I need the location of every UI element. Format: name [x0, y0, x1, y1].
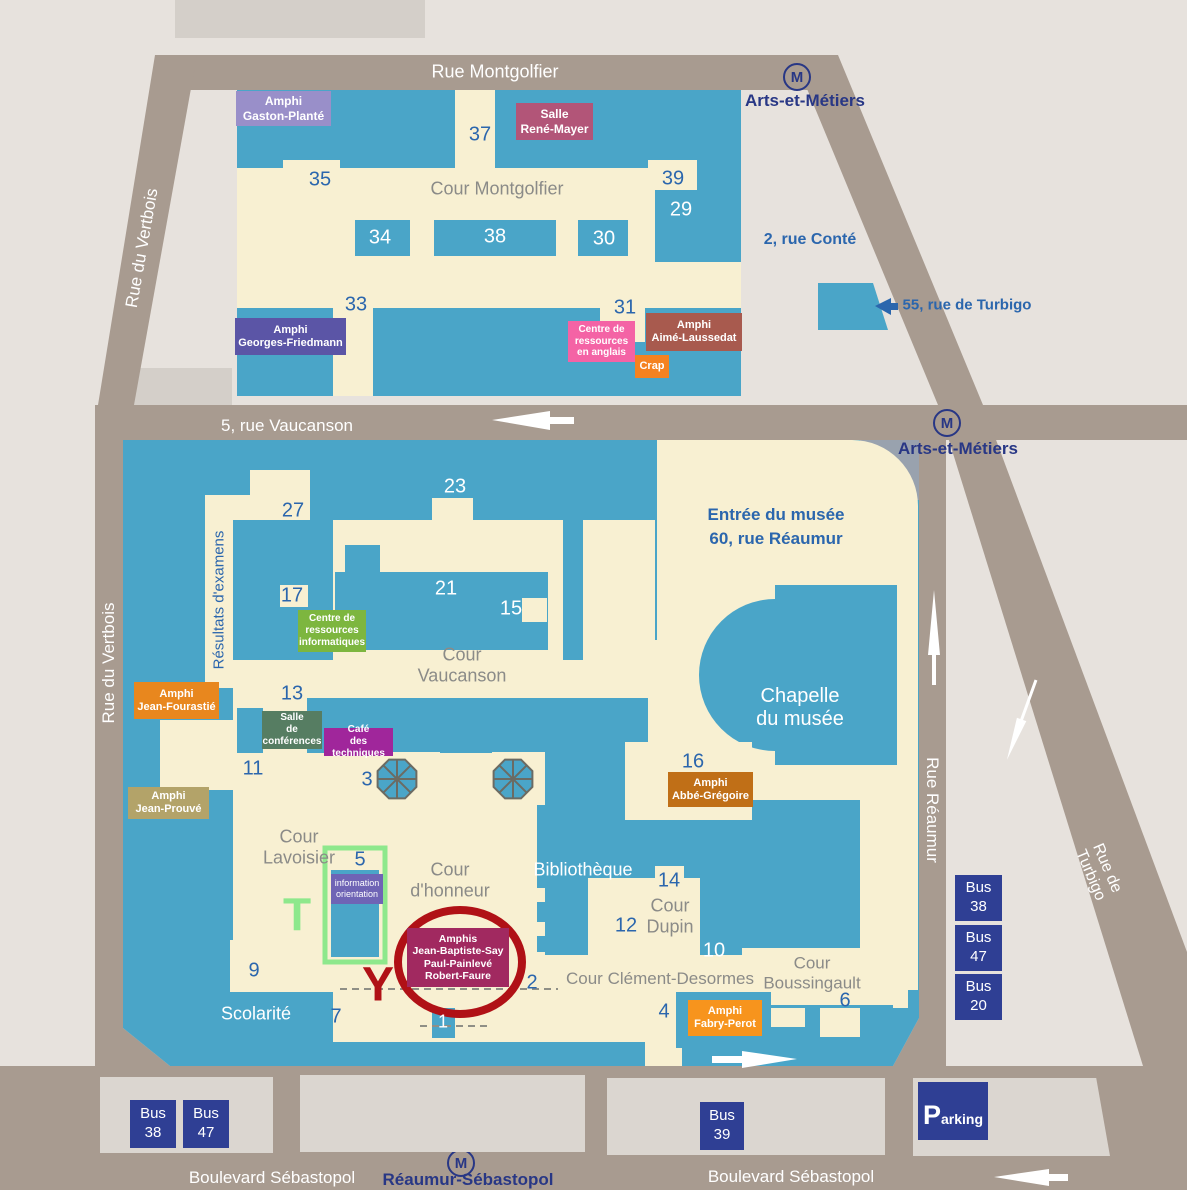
square-block: [300, 1075, 585, 1152]
room-rene-mayer: Salle René-Mayer: [516, 103, 593, 140]
room-crap: Crap: [635, 355, 669, 378]
number-9: 9: [248, 960, 259, 983]
street-rue-reaumur: Rue Réaumur: [922, 757, 942, 863]
number-13: 13: [281, 683, 303, 706]
street-rue-vaucanson: 5, rue Vaucanson: [221, 416, 353, 436]
area-scolarite: Scolarité: [221, 1004, 291, 1025]
courtyard-montgolfier: Cour Montgolfier: [430, 179, 563, 200]
bus-stop-block-middle: [607, 1078, 885, 1155]
courtyard-boussingault: Cour Boussingault: [763, 953, 860, 992]
room-gaston-plante: Amphi Gaston-Planté: [236, 91, 331, 126]
road-rue-reaumur: [919, 405, 946, 1066]
courtyard-clement-desormes: Cour Clément-Desormes: [566, 969, 754, 989]
number-35: 35: [309, 169, 331, 192]
number-6: 6: [839, 990, 850, 1013]
number-11: 11: [243, 758, 264, 781]
bus-badge-38-bottom: Bus 38: [130, 1100, 176, 1148]
number-23: 23: [444, 476, 466, 499]
room-salle-conferences: Salle de conférences: [262, 711, 322, 749]
street-boulevard-sebastopol-left: Boulevard Sébastopol: [189, 1168, 355, 1188]
room-abbe-gregoire: Amphi Abbé-Grégoire: [668, 772, 753, 807]
bus-badge-20-right: Bus 20: [955, 974, 1002, 1020]
bus-badge-38-right: Bus 38: [955, 875, 1002, 921]
number-3: 3: [361, 769, 372, 792]
area-resultats-examens: Résultats d'examens: [210, 531, 227, 670]
room-aime-laussedat: Amphi Aimé-Laussedat: [646, 313, 742, 351]
number-29: 29: [670, 199, 692, 222]
address-55-rue-turbigo: 55, rue de Turbigo: [903, 296, 1032, 313]
number-1: 1: [438, 1012, 448, 1033]
number-33: 33: [345, 294, 367, 317]
number-5: 5: [354, 849, 365, 872]
address-rue-conte: 2, rue Conté: [764, 231, 856, 249]
number-4: 4: [658, 1001, 669, 1024]
number-10: 10: [703, 940, 725, 963]
room-jean-fourastie: Amphi Jean-Fourastié: [134, 682, 219, 719]
metro-badge-mid: M: [933, 409, 961, 437]
number-7: 7: [330, 1006, 341, 1029]
room-jean-prouve: Amphi Jean-Prouvé: [128, 787, 209, 819]
number-27: 27: [282, 500, 304, 523]
map-geometry: [0, 0, 1187, 1190]
metro-badge-top: M: [783, 63, 811, 91]
room-information-orientation: information orientation: [331, 874, 383, 904]
number-38: 38: [484, 226, 506, 249]
marker-y: Y: [362, 957, 394, 1012]
bus-badge-47-bottom: Bus 47: [183, 1100, 229, 1148]
courtyard-vaucanson: Cour Vaucanson: [418, 644, 507, 685]
number-16: 16: [682, 751, 704, 774]
room-cafe-techniques: Café des techniques: [324, 728, 393, 756]
marker-t: T: [283, 889, 311, 942]
number-14: 14: [658, 870, 680, 893]
parking-badge: Parking: [918, 1082, 988, 1140]
bus-badge-47-right: Bus 47: [955, 925, 1002, 971]
number-12: 12: [615, 915, 637, 938]
metro-station-bottom: Réaumur-Sébastopol: [383, 1170, 554, 1190]
courtyard-dupin: Cour Dupin: [646, 895, 693, 936]
parasol-icon: [378, 760, 417, 799]
number-15: 15: [500, 598, 522, 621]
room-ressources-informatiques: Centre de ressources informatiques: [298, 610, 366, 652]
bus-badge-39-bottom: Bus 39: [700, 1102, 744, 1150]
street-boulevard-sebastopol-right: Boulevard Sébastopol: [708, 1167, 874, 1187]
road-vertbois-lower: [95, 405, 123, 1066]
number-2: 2: [526, 972, 537, 995]
cnam-campus-map: Rue Montgolfier Rue du Vertbois Rue du V…: [0, 0, 1187, 1190]
number-37: 37: [469, 124, 491, 147]
parasol-icon: [494, 760, 533, 799]
number-17: 17: [281, 585, 303, 608]
street-rue-du-vertbois-lower: Rue du Vertbois: [99, 603, 119, 724]
room-fabry-perot: Amphi Fabry-Perot: [688, 1000, 762, 1036]
courtyard-honneur: Cour d'honneur: [410, 859, 490, 900]
number-39: 39: [662, 168, 684, 191]
room-amphis-say-painleve-faure: Amphis Jean-Baptiste-Say Paul-Painlevé R…: [407, 928, 509, 987]
area-bibliotheque: Bibliothèque: [533, 860, 632, 881]
number-31: 31: [614, 297, 636, 320]
metro-station-mid: Arts-et-Métiers: [898, 439, 1018, 459]
street-rue-montgolfier: Rue Montgolfier: [431, 62, 558, 83]
room-ressources-anglais: Centre de ressources en anglais: [568, 321, 635, 362]
metro-station-top: Arts-et-Métiers: [745, 91, 865, 111]
number-21: 21: [435, 578, 457, 601]
courtyard-lavoisier: Cour Lavoisier: [263, 826, 335, 867]
address-musee-entrance: Entrée du musée 60, rue Réaumur: [708, 503, 845, 551]
number-34: 34: [369, 227, 391, 250]
room-georges-friedmann: Amphi Georges-Friedmann: [235, 318, 346, 355]
area-chapelle: Chapelle du musée: [756, 685, 844, 731]
number-30: 30: [593, 228, 615, 251]
